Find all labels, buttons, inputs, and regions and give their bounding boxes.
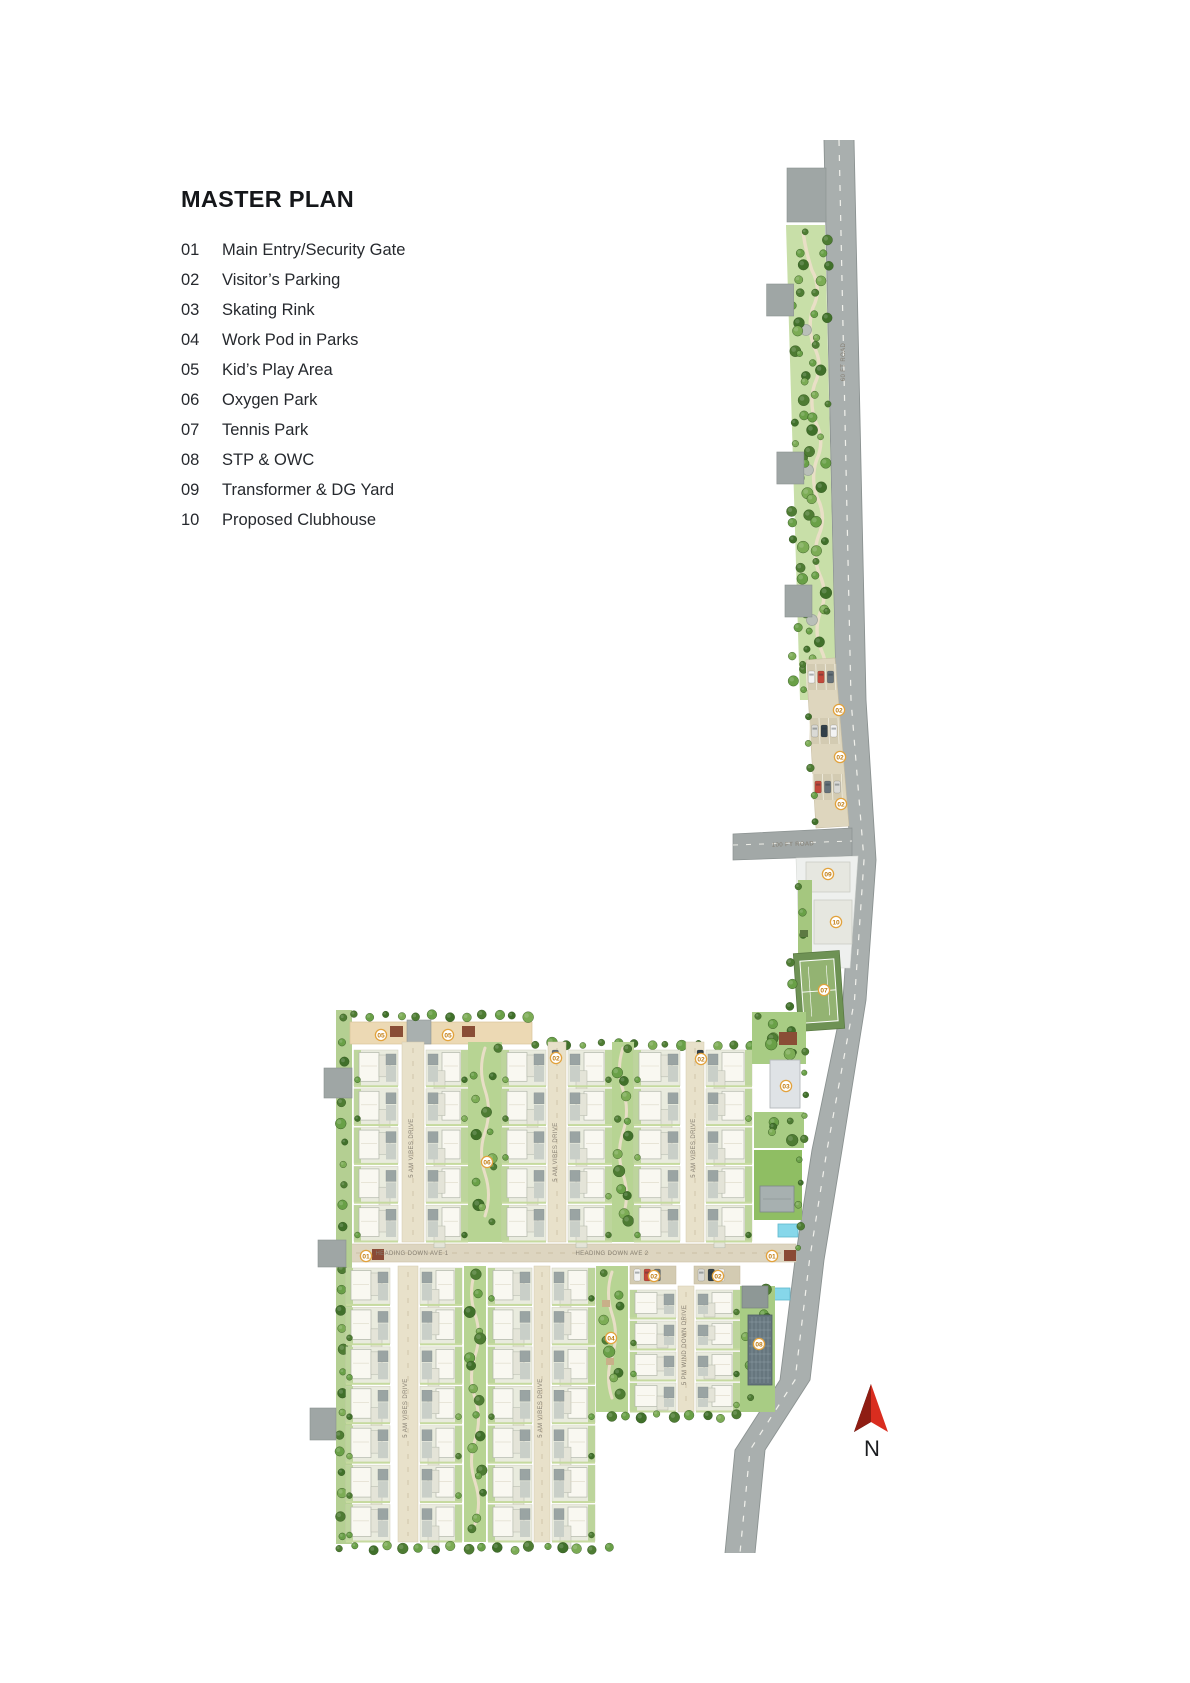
map-marker-08: 08 (753, 1338, 764, 1349)
map-marker-02: 02 (834, 751, 845, 762)
svg-text:02: 02 (714, 1273, 722, 1280)
svg-text:02: 02 (835, 707, 843, 714)
map-marker-02: 02 (648, 1270, 659, 1281)
street-label: 5 AM VIBES DRIVE (409, 1118, 415, 1177)
street-label: HEADING DOWN AVE 2 (575, 1251, 648, 1257)
svg-text:02: 02 (837, 801, 845, 808)
street-label: 5 AM VIBES DRIVE (691, 1118, 697, 1177)
map-marker-09: 09 (822, 868, 833, 879)
north-label: N (856, 1436, 888, 1462)
map-marker-01: 01 (766, 1250, 777, 1261)
map-marker-02: 02 (835, 798, 846, 809)
svg-text:02: 02 (552, 1055, 560, 1062)
map-marker-02: 02 (550, 1052, 561, 1063)
street-label: 5 PM WIND DOWN DRIVE (682, 1305, 688, 1385)
map-marker-05: 05 (375, 1029, 386, 1040)
linear-park (767, 225, 836, 726)
svg-text:07: 07 (820, 987, 828, 994)
map-marker-04: 04 (605, 1332, 616, 1343)
map-marker-01: 01 (360, 1250, 371, 1261)
master-plan-map: 5 AM VIBES DRIVE5 AM VIBES DRIVE5 AM VIB… (0, 0, 1190, 1683)
svg-text:04: 04 (607, 1335, 615, 1342)
svg-text:09: 09 (824, 871, 832, 878)
svg-text:10: 10 (832, 919, 840, 926)
svg-text:06: 06 (483, 1159, 491, 1166)
svg-text:03: 03 (782, 1083, 790, 1090)
map-marker-06: 06 (481, 1156, 492, 1167)
svg-text:05: 05 (444, 1032, 452, 1039)
svg-text:01: 01 (362, 1253, 370, 1260)
svg-text:01: 01 (768, 1253, 776, 1260)
map-marker-10: 10 (830, 916, 841, 927)
svg-text:02: 02 (650, 1273, 658, 1280)
map-marker-02: 02 (712, 1270, 723, 1281)
map-marker-03: 03 (780, 1080, 791, 1091)
svg-text:02: 02 (836, 754, 844, 761)
svg-text:02: 02 (697, 1056, 705, 1063)
map-marker-07: 07 (818, 984, 829, 995)
svg-text:08: 08 (755, 1341, 763, 1348)
street-label: 5 AM VIBES DRIVE (538, 1378, 544, 1437)
street-label: 60 FT ROAD (841, 342, 847, 381)
map-marker-05: 05 (442, 1029, 453, 1040)
street-label: 5 AM VIBES DRIVE (553, 1122, 559, 1181)
street-label: HEADING DOWN AVE 1 (375, 1251, 448, 1257)
map-marker-02: 02 (833, 704, 844, 715)
street-label: 5 AM VIBES DRIVE (403, 1378, 409, 1437)
north-arrow-icon (854, 1384, 888, 1432)
map-marker-02: 02 (695, 1053, 706, 1064)
svg-text:05: 05 (377, 1032, 385, 1039)
master-plan-page: MASTER PLAN 01Main Entry/Security Gate02… (0, 0, 1190, 1683)
